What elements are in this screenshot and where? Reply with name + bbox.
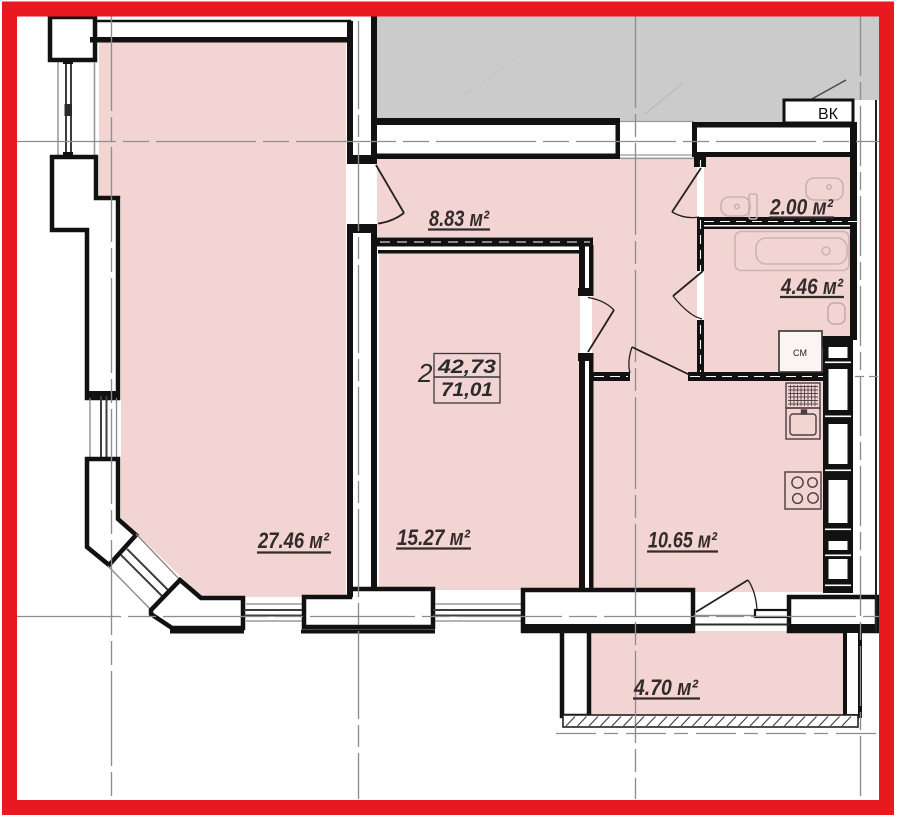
svg-text:4.46 м²: 4.46 м²	[780, 274, 843, 299]
svg-text:2: 2	[417, 358, 433, 388]
svg-text:27.46 м²: 27.46 м²	[257, 528, 329, 553]
svg-text:71,01: 71,01	[441, 379, 493, 401]
svg-text:15.27 м²: 15.27 м²	[397, 525, 471, 550]
svg-text:10.65 м²: 10.65 м²	[648, 528, 718, 553]
svg-text:42,73: 42,73	[437, 356, 496, 378]
svg-text:8.83 м²: 8.83 м²	[429, 206, 490, 231]
svg-text:ВК: ВК	[818, 106, 839, 123]
svg-text:2.00 м²: 2.00 м²	[769, 195, 833, 220]
svg-text:4.70 м²: 4.70 м²	[633, 675, 698, 700]
svg-text:СМ: СМ	[793, 348, 807, 358]
